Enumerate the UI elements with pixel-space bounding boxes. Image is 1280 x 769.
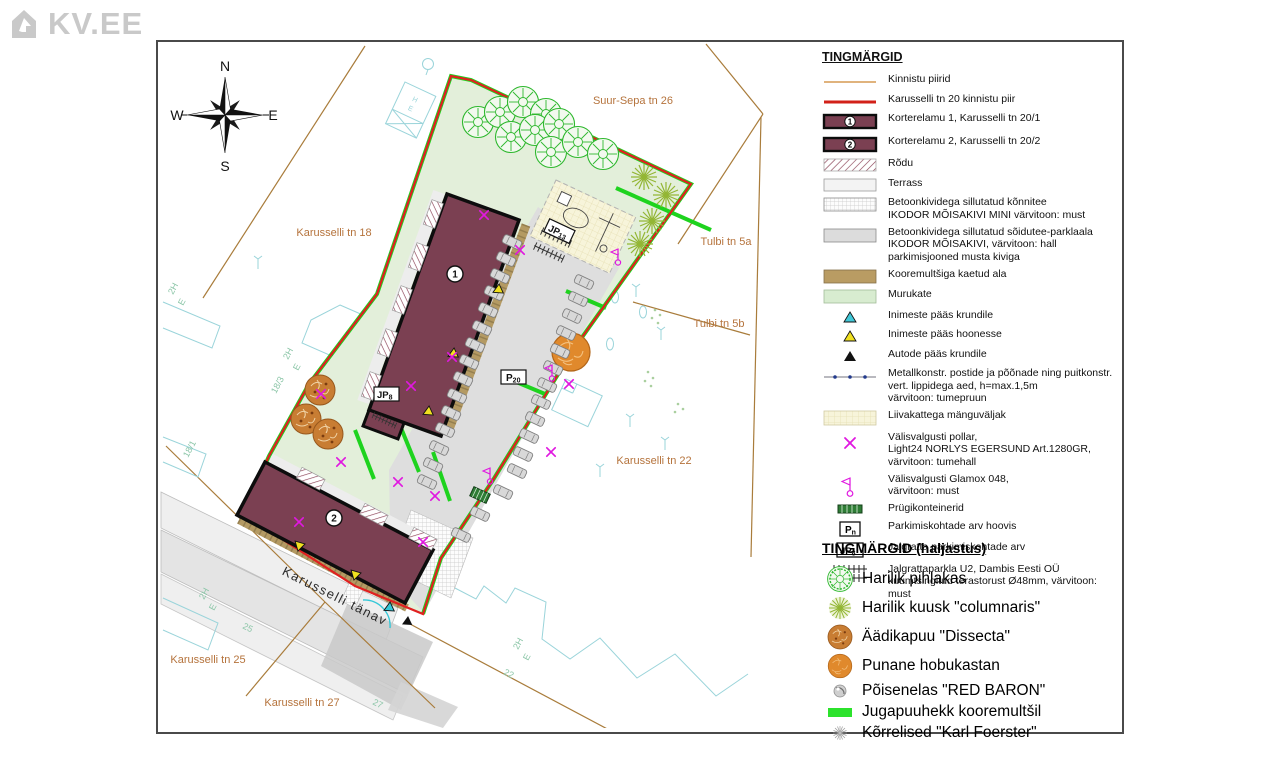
legend-row-konnitee: Betoonkividega sillutatud kõnnitee IKODO…: [822, 196, 1120, 221]
cadastral-label: E: [521, 652, 533, 662]
legend-row-soidutee: Betoonkividega sillutatud sõidutee-parkl…: [822, 226, 1120, 264]
car-access-icon: [400, 616, 412, 629]
legend-row-prygi: Prügikonteinerid: [822, 502, 1120, 515]
parcel-line-swatch: [822, 73, 886, 88]
legend-haljastus-panel: TINGMÄRGID (haljastus) Harilik pihlakas …: [822, 540, 1045, 745]
legend-row-kooremults: Kooremultšiga kaetud ala: [822, 268, 1120, 284]
street-label: Karusselli tn 18: [296, 227, 371, 239]
street-label: Tulbi tn 5a: [701, 236, 753, 248]
building2-swatch: 2: [822, 135, 886, 153]
legend-row-aed: Metallkonstr. postide ja põõnade ning pu…: [822, 367, 1120, 405]
trash-swatch: [822, 502, 886, 515]
legend-row-paas-hoonesse: Inimeste pääs hoonesse: [822, 328, 1120, 343]
street-label: Karusselli tn 22: [616, 455, 691, 467]
yellow-triangle-icon: [822, 328, 886, 343]
street-label: Karusselli tn 27: [264, 697, 339, 709]
legend-row-liivakate: Liivakattega mänguväljak: [822, 409, 1120, 426]
kuusk-tree-icon: [822, 595, 858, 621]
legend-label: Liivakattega mänguväljak: [888, 409, 1006, 421]
pihlakas-tree-icon: [822, 566, 858, 592]
legend-label: Betoonkividega sillutatud sõidutee-parkl…: [888, 226, 1093, 238]
legend-label: värvitoon: tumehall: [888, 456, 976, 468]
cyan-triangle-icon: [822, 309, 886, 324]
haljastus-label: Äädikapuu "Dissecta": [858, 628, 1010, 646]
legend-haljastus-title: TINGMÄRGID (haljastus): [822, 540, 1045, 556]
haljastus-row-jugapuuhekk: Jugapuuhekk kooremultšil: [822, 703, 1045, 721]
glamox-light-icon: [822, 473, 886, 498]
cadastral-label: 2H: [281, 346, 295, 361]
cadastral-label: E: [291, 362, 303, 372]
haljastus-row-poisenelas: Põisenelas "RED BARON": [822, 682, 1045, 700]
hedge-bar-icon: [822, 705, 858, 719]
haljastus-label: Jugapuuhekk kooremultšil: [858, 703, 1041, 721]
kv-ee-watermark: KV.EE: [8, 6, 143, 42]
haljastus-label: Harilik pihlakas: [858, 570, 966, 588]
legend-label: parkimisjooned musta kiviga: [888, 251, 1020, 263]
legend-label: Terrass: [888, 177, 922, 189]
existing-house-east: [552, 379, 603, 427]
legend-label: IKODOR MÕISAKIVI MINI värvitoon: must: [888, 209, 1085, 221]
haljastus-label: Harilik kuusk "columnaris": [858, 599, 1040, 617]
bike-count-box-yard: JP8: [374, 387, 399, 402]
legend-label: Välisvalgusti Glamox 048,: [888, 473, 1009, 485]
legend-label: Korterelamu 1, Karusselli tn 20/1: [888, 112, 1040, 124]
hobukastan-tree-icon: [822, 653, 858, 679]
legend-panel: TINGMÄRGID Kinnistu piirid Karusselli tn…: [822, 50, 1120, 605]
cadastral-label: 18/1: [181, 439, 198, 459]
legend-label: värvitoon: tumepruun: [888, 392, 987, 404]
legend-row-pollar: Välisvalgusti pollar, Light24 NORLYS EGE…: [822, 431, 1120, 469]
legend-title: TINGMÄRGID: [822, 50, 1120, 64]
cadastral-label: 18/3: [269, 375, 286, 395]
legend-label: Korterelamu 2, Karusselli tn 20/2: [888, 135, 1040, 147]
legend-label: Välisvalgusti pollar,: [888, 431, 977, 443]
legend-label: Murukate: [888, 288, 932, 300]
house-cursor-icon: [8, 8, 44, 40]
legend-label: Inimeste pääs hoonesse: [888, 328, 1002, 340]
cadastral-label: H: [411, 96, 419, 104]
poisenelas-shrub-icon: [822, 682, 858, 700]
black-triangle-icon: [822, 348, 886, 363]
balcony-swatch: [822, 157, 886, 172]
legend-row-murukate: Murukate: [822, 288, 1120, 304]
watermark-text: KV.EE: [48, 6, 143, 42]
cadastral-label: 2H: [511, 636, 525, 651]
street-label: Karusselli tn 25: [170, 654, 245, 666]
legend-row-autode-paas: Autode pääs krundile: [822, 348, 1120, 363]
bollard-light-icon: [822, 431, 886, 454]
haljastus-label: Põisenelas "RED BARON": [858, 682, 1045, 700]
haljastus-row-hobukastan: Punane hobukastan: [822, 653, 1045, 679]
compass-north: N: [220, 58, 230, 74]
compass-south: S: [220, 158, 229, 174]
legend-label: Kinnistu piirid: [888, 73, 950, 85]
cadastral-label: 2H: [166, 281, 180, 296]
walkway-swatch: [822, 196, 886, 213]
haljastus-label: Punane hobukastan: [858, 657, 1000, 675]
svg-text:1: 1: [848, 118, 853, 127]
legend-label: Karusselli tn 20 kinnistu piir: [888, 93, 1015, 105]
legend-label: Inimeste pääs krundile: [888, 309, 993, 321]
legend-row-paas-krundile: Inimeste pääs krundile: [822, 309, 1120, 324]
legend-label: Rõdu: [888, 157, 913, 169]
svg-text:2: 2: [848, 140, 853, 149]
legend-label: Prügikonteinerid: [888, 502, 964, 514]
parking-count-box: P20: [501, 370, 526, 385]
legend-row-kinnistu-piir-20: Karusselli tn 20 kinnistu piir: [822, 93, 1120, 108]
legend-label: Light24 NORLYS EGERSUND Art.1280GR,: [888, 443, 1091, 455]
cadastral-label: E: [407, 105, 414, 113]
driveway-swatch: [822, 226, 886, 243]
haljastus-row-kuusk: Harilik kuusk "columnaris": [822, 595, 1045, 621]
building1-badge: 1: [452, 270, 458, 281]
red-boundary-swatch: [822, 93, 886, 108]
sand-swatch: [822, 409, 886, 426]
legend-row-korterelamu-1: 1 Korterelamu 1, Karusselli tn 20/1: [822, 112, 1120, 130]
haljastus-row-aadikapuu: Äädikapuu "Dissecta": [822, 624, 1045, 650]
legend-label: Betoonkividega sillutatud kõnnitee: [888, 196, 1047, 208]
legend-label: Kooremultšiga kaetud ala: [888, 268, 1007, 280]
legend-label: Metallkonstr. postide ja põõnade ning pu…: [888, 367, 1112, 379]
street-label: Tulbi tn 5b: [694, 318, 745, 330]
street-label: Suur-Sepa tn 26: [593, 95, 673, 107]
basemap-vegetation-dots: [644, 309, 685, 414]
fence-line-swatch: [822, 367, 886, 384]
legend-label: vert. lippidega aed, h=max.1,5m: [888, 380, 1038, 392]
haljastus-label: Kõrrelised "Karl Foerster": [858, 724, 1037, 742]
lawn-swatch: [822, 288, 886, 304]
page: KV.EE: [0, 0, 1280, 769]
legend-row-glamox: Välisvalgusti Glamox 048, värvitoon: mus…: [822, 473, 1120, 498]
legend-row-pn: Pn Parkimiskohtade arv hoovis: [822, 520, 1120, 537]
aadikapuu-tree-icon: [822, 624, 858, 650]
compass-rose: N S E W: [170, 58, 277, 174]
building1-swatch: 1: [822, 112, 886, 130]
terrace-swatch: [822, 177, 886, 192]
haljastus-row-pihlakas: Harilik pihlakas: [822, 566, 1045, 592]
legend-row-kinnistu-piirid: Kinnistu piirid: [822, 73, 1120, 88]
legend-label: IKODOR MÕISAKIVI, värvitoon: hall: [888, 238, 1057, 250]
haljastus-row-korrelised: Kõrrelised "Karl Foerster": [822, 724, 1045, 742]
legend-label: Autode pääs krundile: [888, 348, 987, 360]
legend-row-rodu: Rõdu: [822, 157, 1120, 172]
cadastral-label: E: [176, 297, 188, 307]
compass-east: E: [268, 107, 277, 123]
existing-house-north: H E: [386, 82, 436, 138]
mulch-swatch: [822, 268, 886, 284]
cadastral-label: 22: [502, 667, 515, 680]
legend-label: Parkimiskohtade arv hoovis: [888, 520, 1016, 532]
grass-aster-icon: [822, 724, 858, 742]
parking-count-icon: Pn: [822, 520, 886, 537]
legend-row-terrass: Terrass: [822, 177, 1120, 192]
legend-row-korterelamu-2: 2 Korterelamu 2, Karusselli tn 20/2: [822, 135, 1120, 153]
building2-badge: 2: [331, 514, 337, 525]
legend-label: värvitoon: must: [888, 485, 959, 497]
